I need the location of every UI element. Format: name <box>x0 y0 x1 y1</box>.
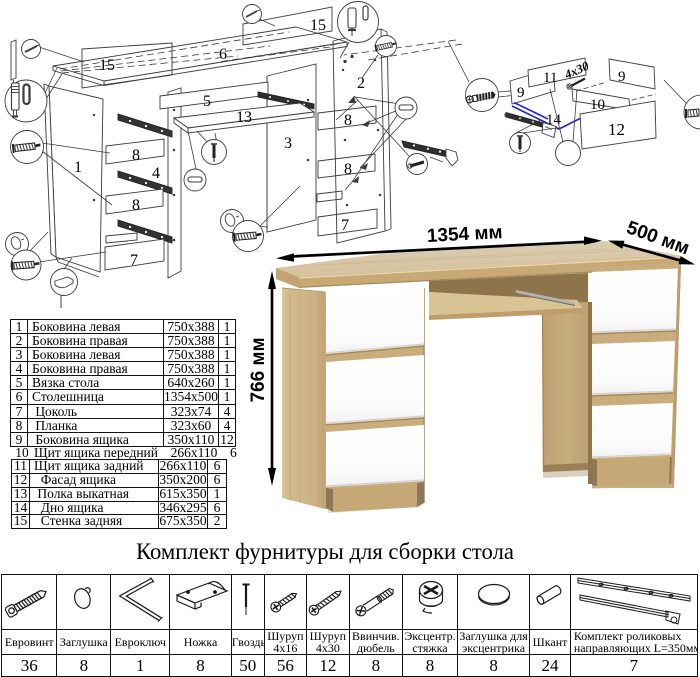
svg-text:8: 8 <box>132 147 140 164</box>
svg-text:5: 5 <box>203 93 211 110</box>
svg-text:7: 7 <box>130 252 138 269</box>
svg-text:7: 7 <box>341 217 349 234</box>
svg-text:8: 8 <box>344 161 352 178</box>
svg-text:13: 13 <box>236 109 252 126</box>
svg-text:1354 мм: 1354 мм <box>426 222 503 247</box>
svg-text:3: 3 <box>284 135 292 152</box>
svg-text:15: 15 <box>99 57 115 74</box>
svg-text:1: 1 <box>74 159 82 176</box>
svg-text:9: 9 <box>618 69 626 85</box>
svg-text:11: 11 <box>543 70 557 86</box>
svg-text:15: 15 <box>310 17 326 34</box>
svg-text:4: 4 <box>152 165 160 182</box>
svg-text:9: 9 <box>517 85 525 101</box>
svg-text:8: 8 <box>132 197 140 214</box>
svg-text:766 мм: 766 мм <box>248 337 269 402</box>
svg-text:12: 12 <box>608 120 625 139</box>
svg-text:8: 8 <box>344 112 352 129</box>
svg-text:2: 2 <box>357 75 365 92</box>
